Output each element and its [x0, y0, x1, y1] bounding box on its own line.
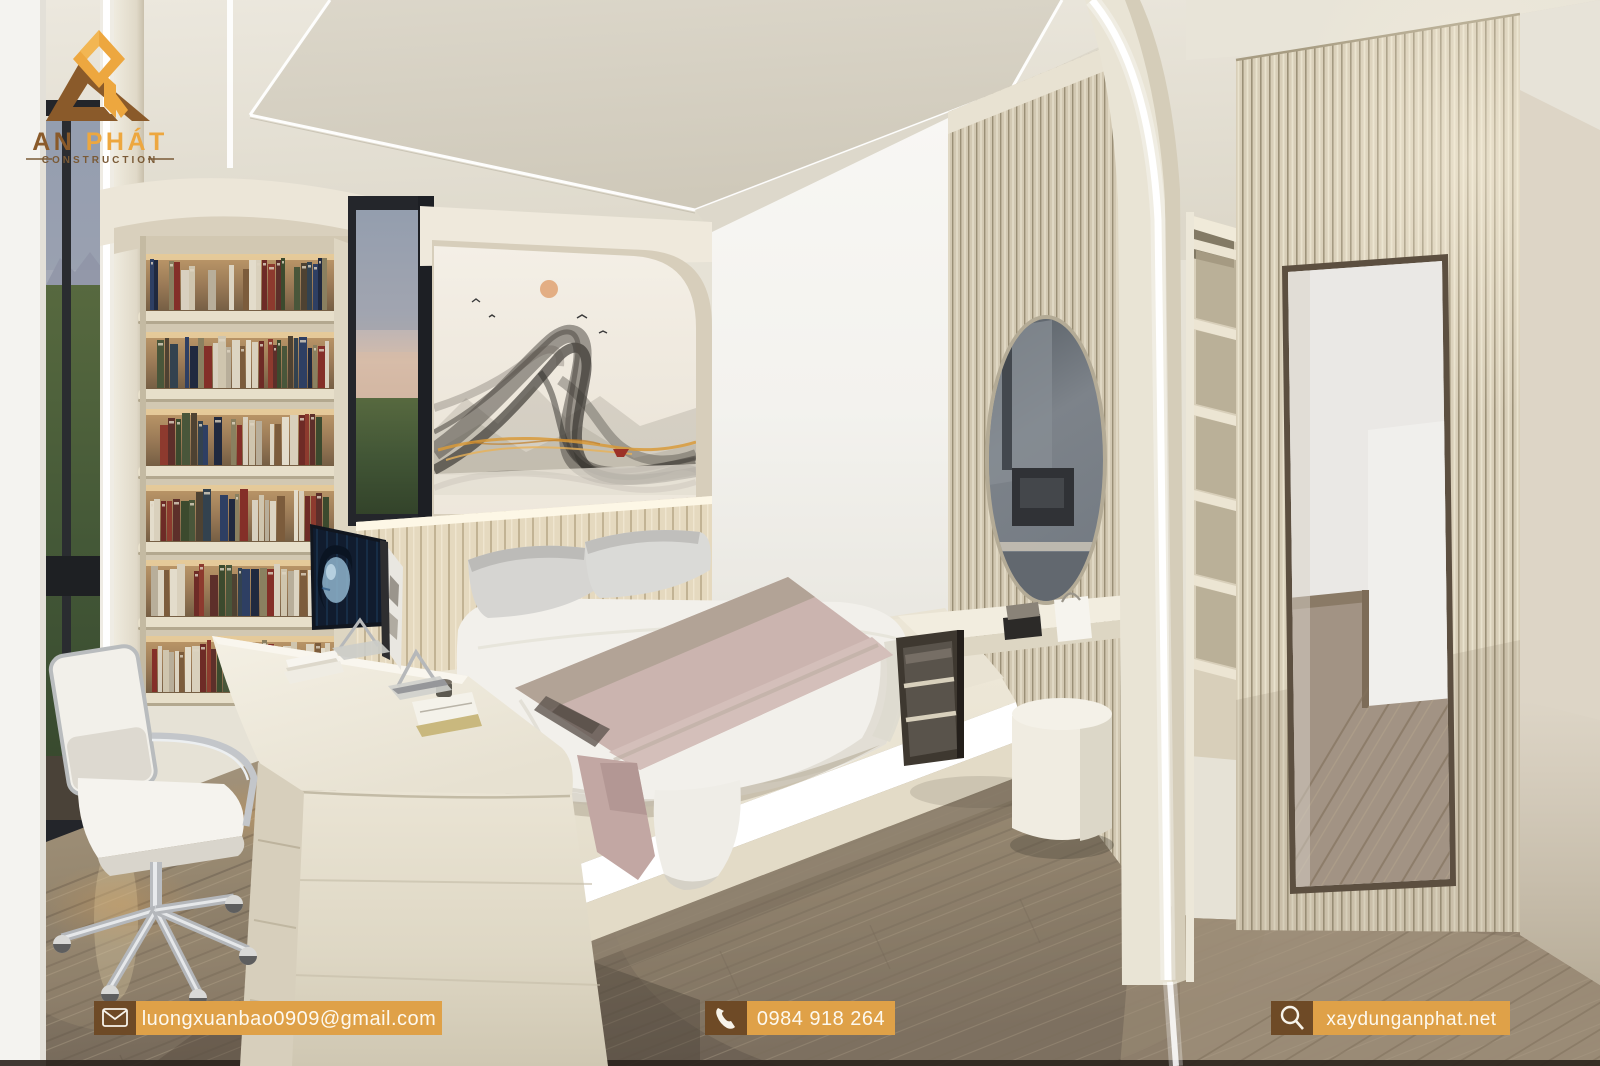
svg-text:luongxuanbao0909@gmail.com: luongxuanbao0909@gmail.com [142, 1008, 437, 1030]
svg-text:CONSTRUCTION: CONSTRUCTION [42, 155, 159, 166]
svg-text:0984 918 264: 0984 918 264 [757, 1008, 885, 1030]
svg-text:AN PHÁT: AN PHÁT [32, 127, 168, 156]
svg-text:xaydunganphat.net: xaydunganphat.net [1326, 1009, 1496, 1030]
